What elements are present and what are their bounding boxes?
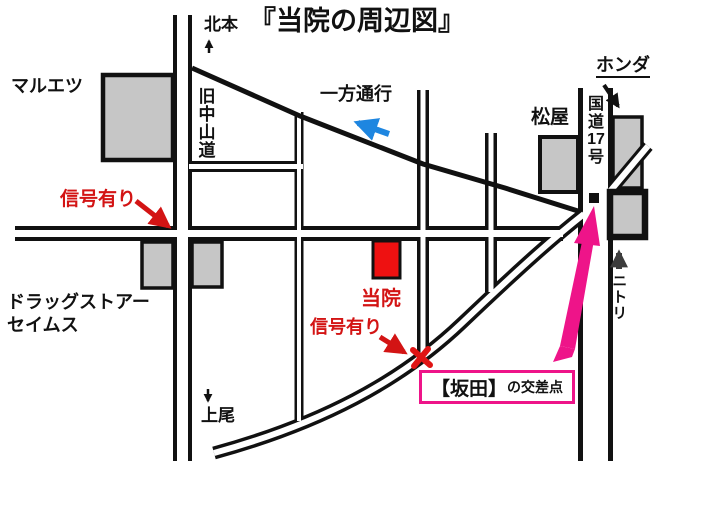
nitori-label: ニトリ	[610, 273, 627, 321]
matsuya-label: 松屋	[531, 107, 569, 129]
area-map: 『当院の周辺図』 北本 マルエツ 旧中山道 一方通行 ホンダ 松屋 国 道 17…	[0, 0, 720, 517]
building-east-of-crossing	[192, 242, 222, 287]
maruetsu-building	[103, 75, 173, 160]
drugstore-label-line2: セイムス	[7, 315, 79, 336]
sakata-name: 【坂田】	[431, 374, 507, 401]
drugstore-label-line1: ドラッグストアー	[7, 292, 150, 313]
map-title: 『当院の周辺図』	[249, 6, 465, 37]
direction-north-label: 北本	[204, 15, 238, 35]
clinic-label: 当院	[361, 288, 401, 311]
building-west-of-crossing	[142, 242, 173, 288]
signal-center-arrow	[380, 337, 404, 352]
sakata-intersection-callout: 【坂田】の交差点	[419, 370, 575, 404]
nitori-side-building	[610, 192, 645, 237]
one-way-label: 一方通行	[320, 84, 392, 105]
intersection-square-marker	[589, 193, 599, 203]
signal-left-arrow	[136, 201, 168, 226]
route17-label: 国 道 17 号	[584, 96, 608, 166]
maruetsu-label: マルエツ	[11, 76, 83, 97]
one-way-arrow-icon	[358, 123, 389, 134]
kyu-nakasendo-label: 旧中山道	[195, 87, 215, 159]
sakata-suffix: の交差点	[507, 377, 563, 397]
direction-south-label: 上尾	[201, 406, 235, 426]
clinic-building	[373, 241, 400, 278]
signal-left-label: 信号有り	[60, 189, 136, 211]
signal-center-label: 信号有り	[310, 317, 382, 338]
honda-label: ホンダ	[596, 55, 650, 78]
matsuya-building	[540, 137, 578, 192]
